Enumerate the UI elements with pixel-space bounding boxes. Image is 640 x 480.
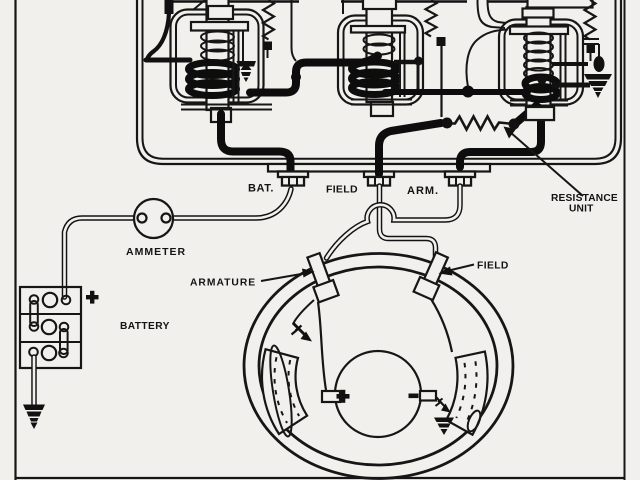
svg-text:UNIT: UNIT (569, 204, 594, 215)
svg-text:RESISTANCE: RESISTANCE (551, 193, 618, 204)
svg-text:FIELD: FIELD (477, 261, 509, 272)
svg-text:FIELD: FIELD (326, 184, 358, 196)
svg-text:ARMATURE: ARMATURE (190, 278, 256, 289)
svg-text:AMMETER: AMMETER (126, 246, 186, 258)
svg-text:BAT.: BAT. (248, 183, 274, 195)
svg-text:ARM.: ARM. (407, 185, 439, 197)
svg-text:BATTERY: BATTERY (120, 321, 170, 332)
